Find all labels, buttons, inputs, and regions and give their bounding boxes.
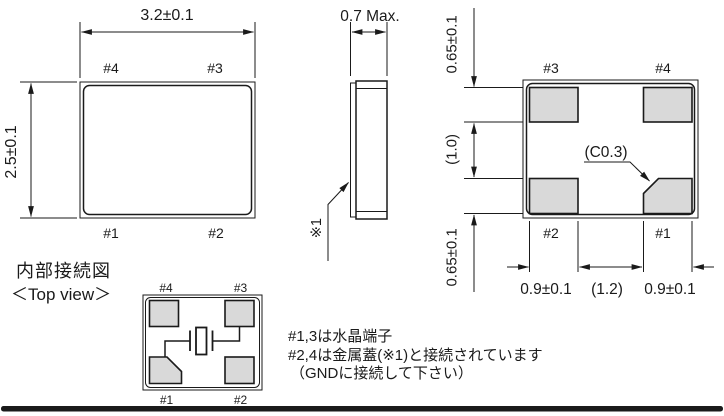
pad-3-shape <box>530 88 579 123</box>
crystal-element-symbol <box>196 328 207 355</box>
side-view-body <box>356 81 387 219</box>
bottom-view-left-ticks <box>464 88 523 214</box>
internal-connection-subtitle: ＜Top view＞ <box>11 285 111 304</box>
bottom-view-pad2-label: #2 <box>531 226 571 242</box>
side-view-thickness-dim-label: 0.7 Max. <box>320 8 420 25</box>
left-dim-middle-label: (1.0) <box>444 94 461 204</box>
top-view-drawing <box>20 22 255 218</box>
internal-pad2-label: #2 <box>221 394 261 407</box>
top-view-pad2-label: #2 <box>196 226 236 242</box>
chamfer-dim-label: (C0.3) <box>566 144 646 161</box>
bottom-dim-middle-label: (1.2) <box>577 281 637 298</box>
side-view-seal-lines <box>356 89 387 212</box>
bottom-separator-bar <box>1 406 723 412</box>
lid-note-label: ※1 <box>308 207 324 249</box>
note-line-1: #1,3は水晶端子 <box>288 329 392 346</box>
bottom-view-pad4-label: #4 <box>643 61 683 77</box>
top-view-pad3-label: #3 <box>195 61 235 77</box>
internal-pad-1-chamfered-shape <box>150 357 182 384</box>
side-view-drawing <box>328 22 387 261</box>
internal-pad-3-shape <box>225 301 254 327</box>
bottom-dim-right-label: 0.9±0.1 <box>630 281 710 298</box>
bottom-view-pad1-label: #1 <box>643 226 683 242</box>
left-dim-top-label: 0.65±0.1 <box>444 0 461 99</box>
crystal-connection-wires <box>165 327 240 357</box>
top-view-extension-lines <box>20 22 255 218</box>
pad-1-chamfered-shape <box>644 179 693 214</box>
top-view-width-dim-label: 3.2±0.1 <box>117 7 217 25</box>
internal-connection-drawing <box>143 295 262 390</box>
bottom-view-pad3-label: #3 <box>531 61 571 77</box>
internal-pad4-label: #4 <box>146 282 186 295</box>
internal-pad-4-shape <box>150 301 179 327</box>
top-view-pad4-label: #4 <box>91 61 131 77</box>
lid-note-leader-arrow <box>328 183 349 262</box>
top-view-package-base <box>80 82 255 218</box>
side-view-lid-strip <box>351 83 357 217</box>
bottom-dim-left-label: 0.9±0.1 <box>506 281 586 298</box>
internal-pad1-label: #1 <box>147 394 187 407</box>
note-line-3: （GNDに接続して下さい） <box>290 366 473 383</box>
internal-connection-title: 内部接続図 <box>16 261 111 281</box>
left-dim-bottom-label: 0.65±0.1 <box>444 202 461 312</box>
pad-2-shape <box>530 179 579 214</box>
package-outline-drawing: 3.2±0.1 2.5±0.1 #4 #3 #1 #2 0.7 Max. ※1 … <box>0 0 724 416</box>
top-view-package-lid <box>84 86 252 215</box>
top-view-height-dim-label: 2.5±0.1 <box>3 102 21 202</box>
side-view-extension-lines <box>351 22 388 76</box>
chamfer-leader-arrow <box>584 162 650 181</box>
internal-pad-2-shape <box>225 357 254 384</box>
pad-4-shape <box>644 88 693 123</box>
internal-pad3-label: #3 <box>221 282 261 295</box>
top-view-pad1-label: #1 <box>91 226 131 242</box>
note-line-2: #2,4は金属蓋(※1)と接続されています <box>288 348 543 365</box>
